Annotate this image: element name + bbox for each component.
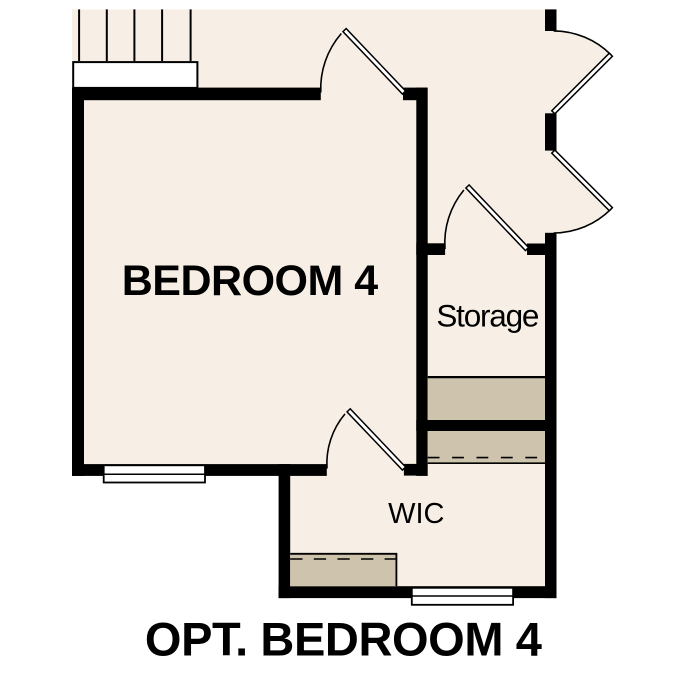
svg-text:BEDROOM 4: BEDROOM 4 [122,257,379,305]
svg-text:WIC: WIC [388,498,444,530]
svg-text:OPT. BEDROOM 4: OPT. BEDROOM 4 [145,613,542,666]
svg-text:Storage: Storage [436,297,539,333]
